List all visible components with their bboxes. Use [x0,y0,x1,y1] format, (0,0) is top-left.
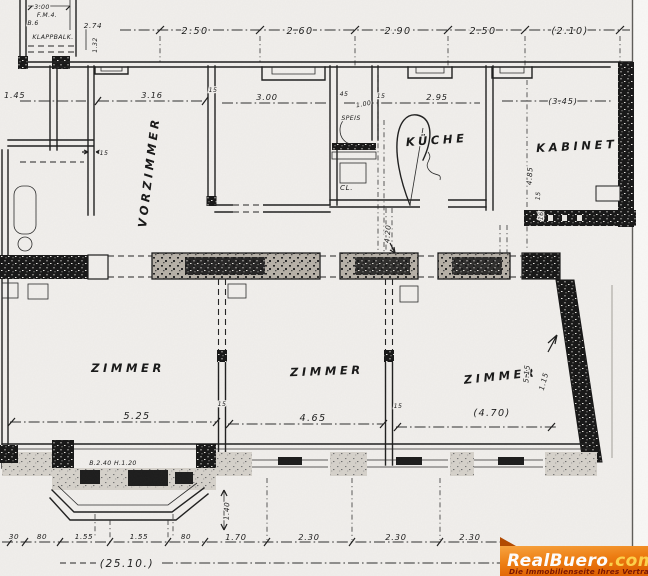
paper-grain-overlay [0,0,648,576]
floor-plan-scan: 2.50 2.60 2.90 2.50 (2.10) 3.00 F.M.4. B… [0,0,648,576]
floor-plan-drawing: 2.50 2.60 2.90 2.50 (2.10) 3.00 F.M.4. B… [0,0,648,576]
